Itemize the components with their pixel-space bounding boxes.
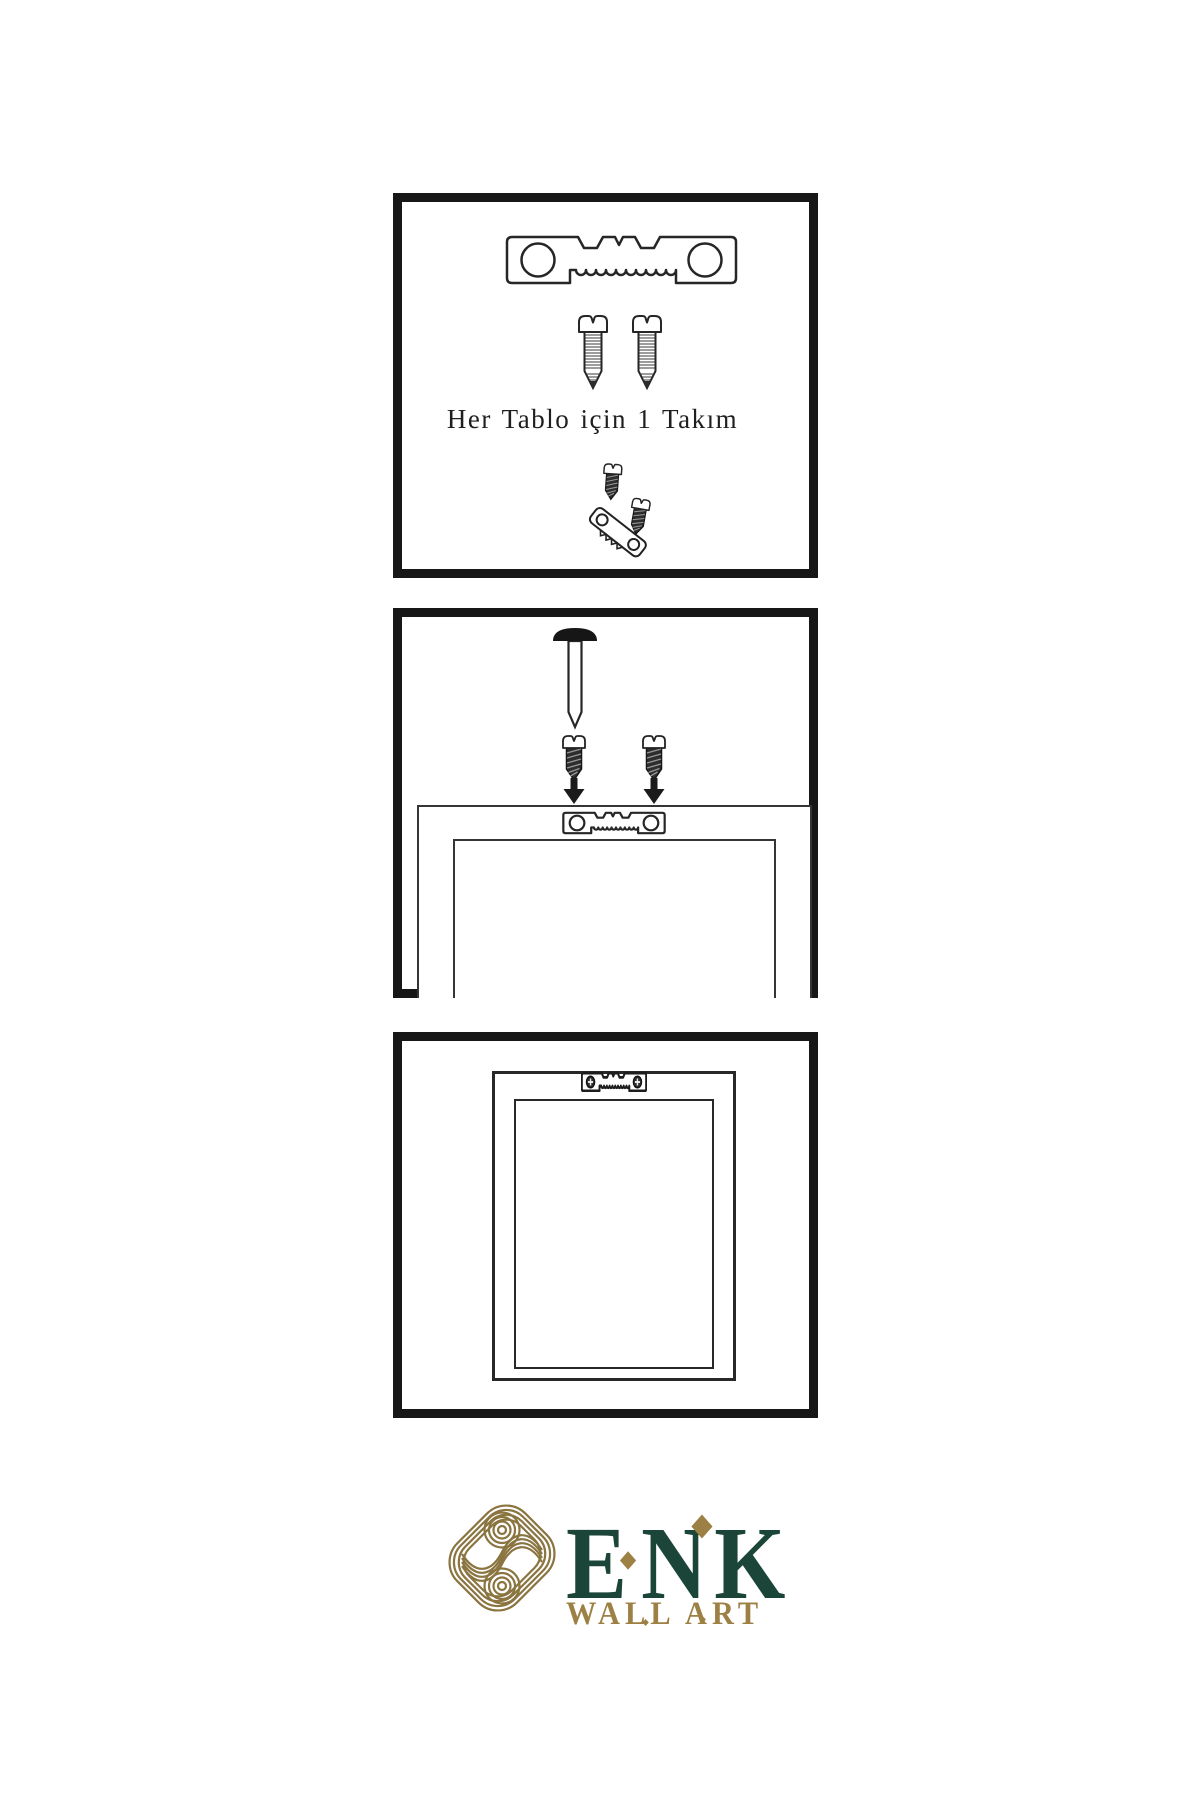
arrow-down-icon bbox=[563, 778, 585, 804]
mounted-hanger-icon bbox=[581, 1072, 647, 1092]
angled-hanger-with-screws-icon bbox=[584, 460, 672, 562]
screw-icon bbox=[576, 313, 610, 395]
dark-screw-icon bbox=[561, 734, 587, 784]
wall-nail-icon bbox=[551, 626, 599, 730]
brand-tagline-text: WALL ART bbox=[566, 1596, 763, 1632]
kit-caption: Her Tablo için 1 Takım bbox=[389, 404, 796, 435]
sawtooth-hanger-icon bbox=[562, 811, 666, 835]
sawtooth-hanger-icon bbox=[504, 234, 739, 286]
frame-back-inner bbox=[453, 839, 776, 998]
screw-icon bbox=[630, 313, 664, 395]
arrow-down-icon bbox=[643, 778, 665, 804]
panel-hardware-kit: Her Tablo için 1 Takım bbox=[393, 193, 818, 578]
dark-screw-icon bbox=[641, 734, 667, 784]
instruction-sheet: Her Tablo için 1 Takım bbox=[0, 0, 1200, 1800]
knot-logo-icon bbox=[440, 1490, 564, 1626]
panel-hung-frame bbox=[393, 1032, 818, 1418]
frame-front-inner bbox=[514, 1099, 714, 1369]
brand-tagline: WALL ART bbox=[566, 1596, 763, 1633]
panel-wall-installation bbox=[393, 608, 818, 998]
